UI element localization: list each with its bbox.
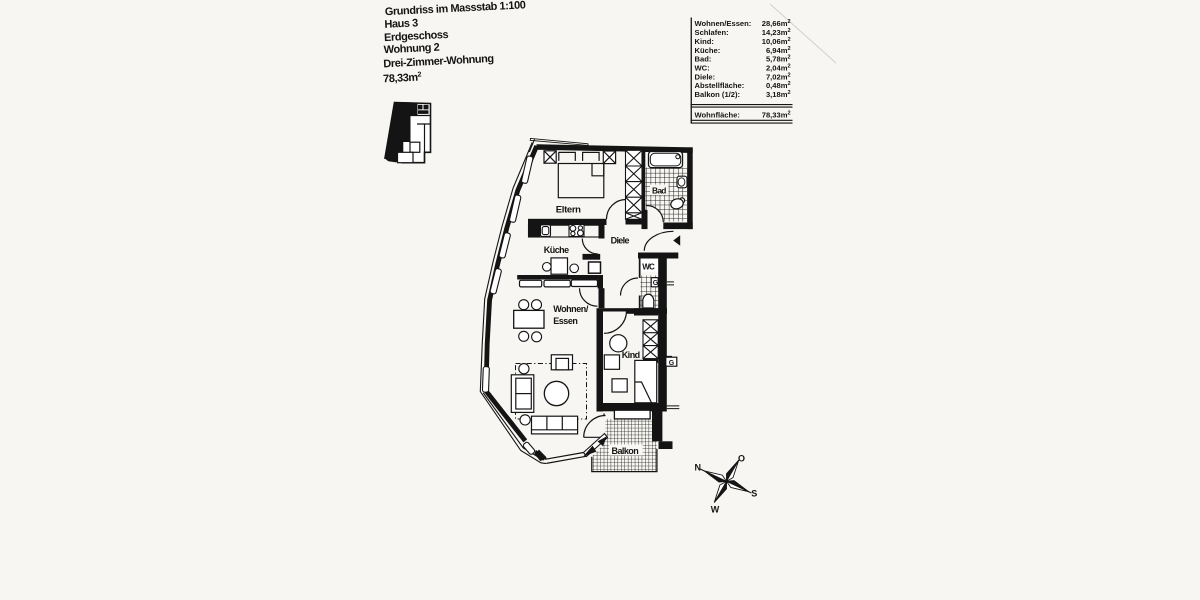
- svg-text:Eltern: Eltern: [556, 205, 581, 216]
- svg-text:G: G: [669, 360, 675, 367]
- svg-text:WC: WC: [642, 262, 655, 271]
- svg-text:S: S: [751, 488, 757, 498]
- svg-text:Diele:: Diele:: [695, 72, 716, 81]
- svg-text:Bad: Bad: [652, 186, 666, 196]
- svg-text:Schlafen:: Schlafen:: [695, 28, 729, 37]
- svg-text:G: G: [653, 280, 659, 287]
- svg-text:2: 2: [788, 110, 791, 116]
- svg-text:Abstellfläche:: Abstellfläche:: [695, 81, 745, 90]
- svg-text:Wohnen/Essen:: Wohnen/Essen:: [695, 19, 752, 28]
- svg-text:Bad:: Bad:: [695, 55, 712, 64]
- svg-text:78,33m2: 78,33m2: [383, 71, 422, 85]
- svg-text:78,33m: 78,33m: [762, 110, 788, 119]
- svg-text:0,48m: 0,48m: [766, 81, 788, 90]
- svg-text:Kind: Kind: [622, 350, 640, 360]
- svg-text:2: 2: [788, 46, 791, 52]
- svg-text:WC:: WC:: [695, 64, 710, 73]
- svg-text:2: 2: [788, 19, 791, 25]
- svg-text:2: 2: [788, 90, 791, 96]
- svg-text:Wohnen/: Wohnen/: [553, 304, 589, 314]
- svg-text:O: O: [738, 453, 745, 463]
- svg-text:7,02m: 7,02m: [766, 72, 788, 81]
- svg-text:2: 2: [788, 81, 791, 87]
- svg-text:3,18m: 3,18m: [766, 90, 788, 99]
- svg-text:2: 2: [788, 28, 791, 34]
- svg-text:2: 2: [788, 72, 791, 78]
- svg-text:Haus 3: Haus 3: [384, 17, 418, 31]
- svg-text:Küche: Küche: [544, 245, 569, 255]
- svg-text:Balkon (1/2):: Balkon (1/2):: [695, 90, 741, 99]
- svg-text:Diele: Diele: [611, 235, 630, 245]
- svg-text:Essen: Essen: [553, 316, 577, 326]
- svg-text:6,94m: 6,94m: [766, 46, 788, 55]
- svg-text:Wohnfläche:: Wohnfläche:: [695, 110, 740, 119]
- svg-text:2,04m: 2,04m: [766, 64, 788, 73]
- svg-text:2: 2: [788, 55, 791, 61]
- svg-text:10,06m: 10,06m: [762, 37, 788, 46]
- svg-text:28,66m: 28,66m: [762, 19, 788, 28]
- svg-text:2: 2: [788, 37, 791, 43]
- svg-text:2: 2: [788, 64, 791, 70]
- svg-text:Küche:: Küche:: [695, 46, 721, 55]
- svg-text:W: W: [711, 505, 720, 515]
- svg-text:Balkon: Balkon: [612, 446, 639, 456]
- svg-text:5,78m: 5,78m: [766, 55, 788, 64]
- svg-text:14,23m: 14,23m: [762, 28, 788, 37]
- svg-text:N: N: [695, 463, 702, 473]
- svg-text:Kind:: Kind:: [695, 37, 714, 46]
